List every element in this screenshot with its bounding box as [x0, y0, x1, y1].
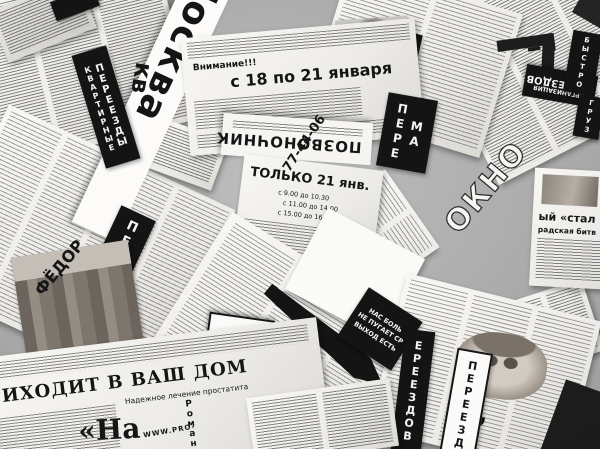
text-lines [187, 23, 411, 58]
stal-headline: ый «стал [538, 210, 596, 226]
kv-fragment: кв [125, 60, 158, 96]
pereezd-strip-label: ПЕРЕЕЗД [452, 358, 481, 449]
ma-label: МА [406, 118, 425, 150]
pere-label: ПЕРЕ [387, 101, 411, 163]
article-photo [541, 174, 598, 207]
text-lines [0, 404, 121, 449]
gruz-label: ГРУЗ [582, 99, 596, 136]
stalingrad-article: ый «стал радская битв [529, 168, 600, 291]
pereezdov-strip-label: ЕРЕЕЗДОВ [400, 339, 426, 444]
bitva-headline: радская битв [538, 225, 597, 237]
schedule-headline: ТОЛЬКО 21 янв. [250, 165, 371, 195]
text-lines [535, 238, 600, 282]
newspaper-collage: бо речи ОРГАНИЗАЦИЯ ПЕРЕЕЗДОВ БЫСТРО ГРУ… [0, 0, 600, 449]
bystro-label: БЫСТРО [574, 36, 591, 91]
